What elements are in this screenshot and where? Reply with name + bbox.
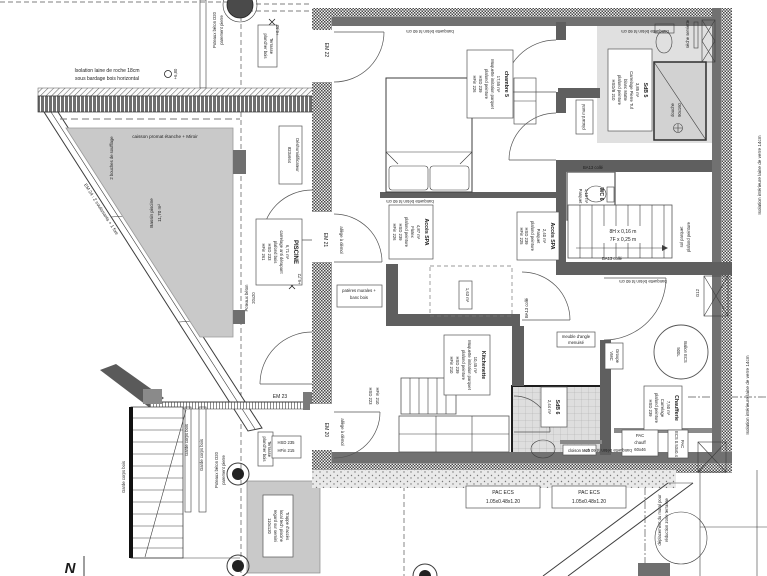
plafond-peinture: plafond peinture — [686, 221, 691, 252]
kitch-area: 10,45 m² — [473, 357, 478, 374]
level-672: +6,72 — [297, 273, 302, 284]
sol-parquet: sol parquet — [679, 226, 684, 248]
terrace-edge-band — [312, 470, 676, 488]
piscine-l3: HSD 233 — [267, 244, 272, 262]
bassin-name: Bassin piscine — [149, 198, 154, 228]
seche-serviette: sèche serviette — [685, 19, 690, 48]
deplacement-1: déplacement du mural pour — [657, 494, 662, 546]
hfin210: HFin 210 — [375, 388, 380, 406]
trappe-1: Trappe d'accès — [285, 512, 290, 540]
spa1-area: 4,87 m² — [416, 225, 421, 240]
em23-label: EM 23 — [273, 394, 288, 400]
garde-2: Garde corps bois — [184, 424, 189, 456]
em20-label: EM 20 — [323, 423, 329, 438]
banquette-1: banquette béton ht 60 cm — [386, 199, 434, 204]
chambre5-l4: HFin 226 — [472, 76, 477, 94]
kitch-l4: HFin 210 — [449, 357, 454, 375]
spa2-l2: plafond peinture — [530, 221, 535, 252]
poteaux-bot-2: parement pierre — [221, 455, 226, 485]
cloison-tech: cloison tech — [568, 448, 591, 453]
chauf-title: Chaufferie — [673, 395, 679, 421]
em20-opening — [310, 404, 334, 450]
spa2-l4: HFin 225 — [519, 228, 524, 246]
ba13-2: BA13 collé — [583, 165, 604, 170]
spa1-title: Accès SPA — [423, 218, 429, 245]
kitchen-counter — [399, 416, 509, 452]
terrasse-bot-2: plancher bois — [262, 437, 267, 462]
trappe-4: 110x120 — [267, 518, 272, 534]
pac-ecs-1a: PAC ECS — [492, 490, 514, 496]
chambre5-l2: plafond peinture — [484, 69, 489, 100]
note-caisson: caisson promat étanche + Miroir — [132, 134, 198, 139]
meuble-1: meuble d'angle — [562, 334, 591, 339]
pac-ecs-small-1: PAC — [680, 440, 685, 448]
allege-note-1: allège à démol — [339, 226, 344, 253]
ba13-3: BA13 collé — [524, 297, 529, 318]
poteaux-top-2: parement pierre — [219, 15, 224, 45]
pac-ecs-small-2: ECS 0.53x0.4 — [674, 431, 679, 458]
placard-mural: placard mural — [581, 104, 586, 129]
garde-3: Garde corps bois — [199, 439, 204, 471]
sdb6-label-box — [541, 387, 567, 427]
banquette-3: banquette béton ht 60 cm — [621, 29, 669, 34]
kitch-l2: plafond peinture — [461, 350, 466, 381]
piscine-area: 6,71 m² — [285, 245, 290, 260]
banquette-5: banquette béton ht 60 cm — [584, 448, 632, 453]
deshu-size: 823x664 — [287, 147, 292, 164]
bassin-area: 11,70 m² — [157, 204, 162, 222]
spa1-l3: HSD 239 — [398, 224, 403, 242]
chambre5-area: 17,55 m² — [496, 76, 501, 93]
sdb5-l3: plafond peinture — [617, 75, 622, 106]
ballon-2: 500L — [676, 347, 681, 357]
hfin215: HFin 215 — [278, 448, 296, 453]
ballon-1: Ballon ECS — [683, 341, 688, 363]
isolation-int-2: Isolation intérieure laine de verre 14cm — [745, 355, 750, 434]
chauf-l3: HSD 239 — [648, 400, 653, 418]
pool-north-wall — [38, 88, 316, 112]
chambre5-l3: HSD 239 — [478, 76, 483, 94]
floorplan-drawing: Isolation laine de roche 18cm sous barda… — [0, 0, 767, 576]
deplacement-2: réduction zone terrasse — [664, 497, 669, 541]
douche-2: 90x160 — [677, 102, 682, 116]
isolation-int-1: Isolation intérieure laine de verre 14cm — [757, 135, 762, 214]
note-isolation-roche-2: sous bardage bois horizontal — [75, 76, 139, 82]
chauf-area: 7,50 m² — [666, 401, 671, 416]
terrace-block — [638, 563, 670, 576]
deshu-name: Déshumidificateur — [295, 138, 300, 172]
g12: G12 — [695, 288, 700, 297]
em22-opening — [310, 30, 334, 82]
em21-label: EM 21 — [322, 233, 328, 248]
poteaux-2020-1: Poteaux béton — [244, 284, 249, 312]
spa1-l4: HFin 226 — [392, 224, 397, 242]
sdb6-title: SdB 6 — [554, 400, 560, 415]
bed — [386, 78, 472, 192]
poteaux-2020-2: 20x20 — [251, 292, 256, 304]
wc6-area: 1,10 m² — [584, 189, 589, 204]
spa2-title: Accès SPA — [549, 222, 555, 249]
piscine-title: PISCINE — [292, 240, 298, 264]
trappe-2: local tech piscine — [279, 510, 284, 543]
pac-ecs-2b: 1.05x0.48x1.20 — [572, 499, 606, 505]
wc6-title: WC 6 — [598, 188, 604, 201]
pateres-1: patères murales + — [342, 288, 376, 293]
banquette-2: banquette béton ht 60 cm — [406, 29, 454, 34]
ba13-1: BA13 collé — [602, 256, 623, 261]
wc6-l1: Parquet — [578, 189, 583, 205]
meuble-2: menuisé — [568, 340, 584, 345]
pac-chauff-1: PAC — [636, 433, 644, 438]
chauf-l1: Carrelage — [660, 399, 665, 418]
piscine-l4: HFin 261 — [261, 244, 266, 262]
poteaux-top-1: Poteaux béton D20 — [212, 11, 217, 48]
spa1-l2: plafond peinture — [404, 217, 409, 248]
sdb6-area: 2,44 m² — [547, 400, 552, 415]
sdb5-area: 3,85 m² — [635, 83, 640, 98]
sdb5-title: SdB 5 — [642, 83, 648, 98]
vmc-1: Groupe — [615, 349, 620, 364]
note-bouches: 2 bouches de soufflage — [109, 136, 114, 180]
terrasse-top-1: Terrasse — [269, 38, 274, 55]
garde-1: Garde corps bois — [121, 461, 126, 493]
chambre5-title: chambre 5 — [503, 71, 509, 97]
chauf-l2: plafond peinture — [654, 393, 659, 424]
pateres-2: banc bois — [350, 295, 368, 300]
poteaux-bot-1: Poteaux béton D20 — [214, 451, 219, 488]
pac-chauff-2: chauff — [634, 440, 646, 445]
stair-risers: 8H x 0,16 m — [610, 229, 637, 235]
north-arrow-label: N — [65, 560, 77, 576]
allege-note-2: allège à démol — [340, 418, 345, 445]
hsd235: HSD 235 — [278, 440, 296, 445]
basin-column — [233, 150, 246, 174]
kitch-l1: Moquette imitation parquet — [467, 340, 472, 390]
kitch-l3: HSD 239 — [455, 357, 460, 375]
sdb5-l2: blanc Matte — [623, 79, 628, 101]
chambre5-l1: Moquette imitation parquet — [490, 59, 495, 109]
stair-treads: 7F x 0,25 m — [610, 237, 636, 243]
pac-ecs-2a: PAC ECS — [578, 490, 600, 496]
note-isolation-roche-1: Isolation laine de roche 18cm — [74, 68, 139, 74]
vmc-2: VMC — [609, 351, 614, 360]
hsd223: HSD 223 — [368, 388, 373, 406]
kitch-title: Kitchenette — [480, 351, 486, 379]
trappe-3: regard sur semini — [273, 510, 278, 542]
sdb5-l4: HSD/B 210 — [611, 80, 616, 102]
floorplan-page: Isolation laine de roche 18cm sous barda… — [0, 0, 767, 576]
level-680: +6,80 — [173, 68, 178, 79]
em21-opening — [310, 212, 334, 262]
terrasse-top-2: plancher bois — [263, 34, 268, 59]
piscine-l1: carrelage anti dérapant — [279, 230, 284, 274]
spa1-l1: Flotex — [410, 226, 415, 238]
em22-label: EM 22 — [323, 43, 329, 58]
douche-1: douche — [670, 102, 675, 116]
level-662: +6,62 — [275, 24, 280, 35]
piscine-l2: plafond bois — [273, 241, 278, 264]
spa2-area: 2,40 m² — [542, 229, 547, 244]
pac-chauff-3: 60x46 — [634, 447, 646, 452]
closet-area: 1,63 m² — [465, 288, 470, 303]
spa2-l1: Parquet — [536, 229, 541, 245]
banquette-4: banquette béton ht 60 cm — [619, 279, 667, 284]
sdb5-l1: Carrelage Pierre Tuf — [629, 71, 634, 110]
pac-ecs-1b: 1.05x0.48x1.20 — [486, 499, 520, 505]
